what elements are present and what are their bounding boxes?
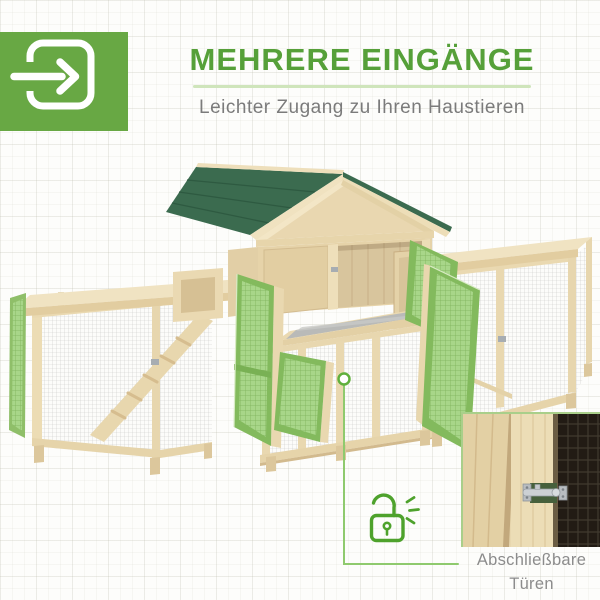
inset-caption-line2: Türen xyxy=(461,573,600,597)
detail-inset-photo xyxy=(461,412,600,547)
login-arrow-icon xyxy=(0,32,128,131)
unlocked-padlock-icon xyxy=(372,495,419,540)
slide-latch-icon xyxy=(523,483,567,503)
page-background: MEHRERE EINGÄNGE Leichter Zugang zu Ihre… xyxy=(0,0,600,600)
latch-closeup-image xyxy=(463,414,600,547)
click-sparkle-icon xyxy=(407,498,419,524)
inset-caption-line1: Abschließbare xyxy=(461,549,600,573)
page-subtitle: Leichter Zugang zu Ihren Haustieren xyxy=(145,97,579,119)
title-underline xyxy=(193,85,531,88)
entry-badge xyxy=(0,32,128,131)
inset-caption: Abschließbare Türen xyxy=(461,549,600,597)
page-title: MEHRERE EINGÄNGE xyxy=(145,42,579,78)
